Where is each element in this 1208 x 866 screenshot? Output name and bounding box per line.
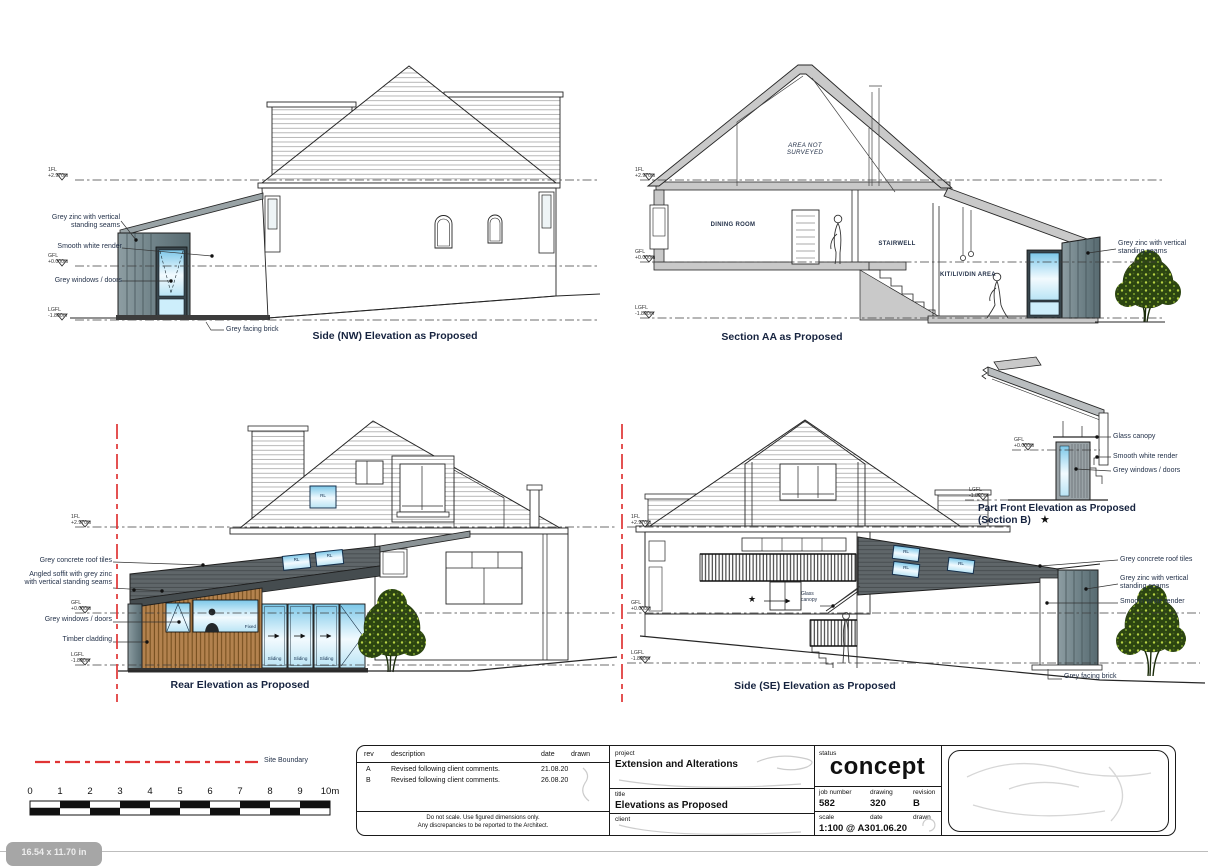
section-aa-drawing	[648, 65, 1181, 323]
pf-label-render: Smooth white render	[1113, 453, 1193, 461]
rear-pivot-window	[166, 603, 190, 632]
nw-level-1fl: 1FL+2.970m	[48, 167, 88, 179]
se-label-brick: Grey facing brick	[1064, 673, 1144, 681]
scale-tick-6: 6	[198, 786, 222, 797]
pf-roof	[988, 367, 1104, 418]
se-zinc-box	[1058, 570, 1098, 667]
section-room-stairwell: STAIRWELL	[867, 241, 927, 247]
section-title: Section AA as Proposed	[657, 331, 907, 343]
rear-sliding-tag-2: Sliding	[288, 656, 313, 661]
pf-subtitle: (Section B)	[978, 515, 1068, 526]
nw-label-render: Smooth white render	[30, 243, 122, 251]
se-star-symbol: ★	[748, 594, 756, 605]
nw-title: Side (NW) Elevation as Proposed	[270, 330, 520, 342]
section-room-kitlivdin: KIT/LIV/DIN AREA	[938, 272, 998, 278]
se-level-1fl: 1FL+2.970m	[631, 514, 671, 526]
rear-rooflight-tag: RL	[310, 493, 336, 498]
logo-area	[948, 750, 1169, 832]
section-level-lgfl: LGFL-1.800m	[635, 305, 675, 317]
rear-gutter	[230, 528, 568, 534]
se-balcony-rail	[810, 620, 857, 646]
se-level-gfl: GFL+0.000m	[631, 600, 671, 612]
se-rooflight-tag-1: RL	[893, 549, 919, 554]
scale-tick-2: 2	[78, 786, 102, 797]
scale-tick-10m: 10m	[315, 786, 345, 797]
scale-tick-9: 9	[288, 786, 312, 797]
rear-label-roof-tiles: Grey concrete roof tiles	[20, 557, 112, 565]
rear-label-soffit: Angled soffit with grey zinc with vertic…	[18, 571, 112, 586]
title-block: rev description date drawn A Revised fol…	[356, 745, 1176, 836]
pf-label-canopy: Glass canopy	[1113, 433, 1183, 441]
pf-level-gfl: GFL+0.000m	[1014, 437, 1054, 449]
nw-elevation-drawing	[70, 66, 600, 330]
site-boundary-label: Site Boundary	[264, 757, 308, 764]
rear-ext-rooflight-tag-1: RL	[283, 557, 310, 562]
scale-tick-1: 1	[48, 786, 72, 797]
se-rooflight-tag-2: RL	[893, 565, 919, 570]
nw-link-roof	[120, 193, 263, 236]
scale-tick-7: 7	[228, 786, 252, 797]
se-label-roof-tiles: Grey concrete roof tiles	[1120, 556, 1204, 564]
se-label-zinc: Grey zinc with vertical standing seams	[1120, 575, 1200, 590]
section-roof-cut	[648, 65, 952, 188]
scale-tick-8: 8	[258, 786, 282, 797]
part-front-detail-drawing	[982, 357, 1111, 500]
rear-level-1fl: 1FL+2.970m	[71, 514, 111, 526]
se-label-render: Smooth white render	[1120, 598, 1204, 606]
drawing-linework	[0, 0, 1208, 858]
nw-terrace	[116, 315, 270, 320]
walking-figure	[987, 273, 1008, 318]
section-ceiling-slab	[656, 182, 950, 190]
se-level-lgfl: LGFL-1.800m	[631, 650, 671, 662]
nw-level-gfl: GFL+0.000m	[48, 253, 88, 265]
nw-eaves	[258, 183, 560, 188]
section-room-dining: DINING ROOM	[698, 222, 768, 228]
architectural-drawing-sheet: { "levels": { "fl1": {"name": "1FL", "va…	[0, 0, 1208, 858]
se-label-canopy: Glass canopy	[801, 592, 829, 603]
nw-label-zinc: Grey zinc with vertical standing seams	[28, 214, 120, 229]
scale-tick-4: 4	[138, 786, 162, 797]
rear-sliding-tag-1: Sliding	[262, 656, 287, 661]
logo-scribbles	[949, 751, 1170, 833]
section-level-1fl: 1FL+2.970m	[635, 167, 675, 179]
nw-level-lgfl: LGFL-1.800m	[48, 307, 88, 319]
se-steps	[812, 646, 833, 668]
rear-elevation-drawing	[113, 421, 617, 673]
tree-section	[1115, 250, 1181, 322]
rear-title: Rear Elevation as Proposed	[115, 679, 365, 691]
pf-label-windows: Grey windows / doors	[1113, 467, 1193, 475]
se-rooflight-tag-3: RL	[948, 561, 974, 566]
scale-tick-5: 5	[168, 786, 192, 797]
nw-wall	[262, 188, 556, 318]
section-gfl-slab	[654, 262, 906, 270]
rear-label-timber: Timber cladding	[20, 636, 112, 644]
rear-label-windows: Grey windows / doors	[20, 616, 112, 624]
rear-level-lgfl: LGFL-1.800m	[71, 652, 111, 664]
standing-figure	[831, 215, 842, 264]
rear-fixed-tag: Fixed	[228, 624, 256, 629]
rear-ext-rooflight-tag-2: RL	[316, 553, 343, 558]
scale-bar-drawing	[30, 801, 330, 815]
scale-tick-0: 0	[18, 786, 42, 797]
scale-tick-3: 3	[108, 786, 132, 797]
nw-label-windows: Grey windows / doors	[30, 277, 122, 285]
se-gable-window	[780, 464, 836, 500]
se-balustrade	[700, 554, 856, 581]
nw-corner-window-left	[268, 199, 277, 229]
nw-corner-window-right	[542, 195, 551, 228]
pf-star-symbol: ★	[1040, 513, 1050, 526]
section-room-attic: AREA NOT SURVEYED	[770, 142, 840, 156]
size-badge: 16.54 x 11.70 in	[6, 842, 102, 866]
rear-level-gfl: GFL+0.000m	[71, 600, 111, 612]
section-label-zinc: Grey zinc with vertical standing seams	[1118, 240, 1206, 255]
section-level-gfl: GFL+0.000m	[635, 249, 675, 261]
rear-sliding-tag-3: Sliding	[314, 656, 339, 661]
pf-title: Part Front Elevation as Proposed	[978, 503, 1193, 514]
pf-level-lgfl: LGFL-1.800m	[969, 487, 1009, 499]
se-title: Side (SE) Elevation as Proposed	[690, 680, 940, 692]
pendant-lights	[963, 207, 971, 255]
